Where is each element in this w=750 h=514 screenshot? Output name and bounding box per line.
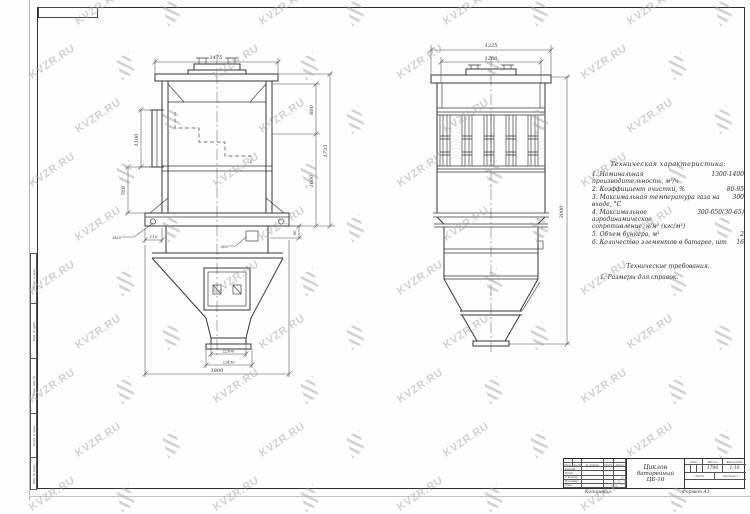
tech-specs-block: Техническая характеристика: 1. Номинальн… (592, 160, 744, 281)
spec-item: 5. Объем бункера, м³2 (592, 232, 744, 239)
tb-cell (604, 484, 614, 488)
dim-outlet-outer: □450 (223, 360, 235, 365)
tb-cell (614, 484, 626, 488)
spec-value: 2 (740, 232, 744, 239)
dim-inlet-height: 1100 (134, 133, 140, 147)
spec-text: 3. Максимальная температура газа на вход… (592, 195, 730, 208)
dim-outlet-inner: □300 (223, 349, 235, 354)
dim-base-offset: 110 (150, 234, 158, 239)
spec-item: 2. Коэффициент очистки, %80-95 (592, 187, 744, 194)
spec-item: 4. Максимальное аэродинамическое сопроти… (592, 210, 744, 230)
spec-item: 1. Номинальная производительность, м³/ч1… (592, 172, 744, 185)
tech-specs-title: Техническая характеристика: (592, 160, 744, 168)
left-view (145, 54, 289, 358)
dim-right-total: 1735 (323, 145, 329, 158)
right-view (431, 56, 551, 354)
dim-hole-diameter: Ø30 (112, 235, 122, 240)
spec-value: 16 (736, 240, 744, 247)
spec-text: 6. Количество элементов в батарее, шт (592, 240, 733, 247)
doc-name-line: ЦБ-16 (647, 477, 665, 483)
tb-cell (582, 484, 604, 488)
mass-value: 1790 (703, 465, 723, 473)
spec-value: 300 (733, 195, 744, 208)
document-name: Циклон батарейный ЦБ-16 (626, 459, 684, 488)
tech-requirements-title: Технические требования. (592, 263, 744, 270)
tech-requirement-item: 1. Размеры для справок. (592, 274, 744, 281)
dim-small-right: 90 (292, 230, 297, 236)
spec-text: 2. Коэффициент очистки, % (592, 187, 724, 194)
title-block: Изм. Лист № докум. Подп. Дата Разраб. Пр… (563, 458, 745, 489)
dim-base-width: 1800 (211, 368, 225, 374)
dim-rv-height: 3000 (559, 205, 565, 219)
spec-item: 6. Количество элементов в батарее, шт16 (592, 240, 744, 247)
scale-value: 1:10 (723, 465, 746, 473)
format-label: Формат А1 (682, 490, 710, 495)
tb-row-label: Утв. (564, 484, 582, 488)
spec-text: 4. Максимальное аэродинамическое сопроти… (592, 210, 694, 230)
dim-top-width: 1475 (210, 55, 223, 61)
spec-text: 5. Объем бункера, м³ (592, 232, 737, 239)
spec-value: 80-95 (727, 187, 744, 194)
dim-right-upper: 600 (309, 104, 315, 114)
dim-rv-inner-width: 1200 (485, 56, 499, 62)
doc-name-line: Циклон (643, 464, 667, 471)
titleblock-revision-grid: Изм. Лист № докум. Подп. Дата Разраб. Пр… (564, 459, 626, 488)
spec-value: 300-650(30-65) (697, 210, 744, 230)
sheet-label: Лист (685, 473, 715, 480)
drawing-sheet: { "watermark": { "text": "KVZR.RU" }, "c… (0, 0, 750, 500)
right-view-dimensions: 1325 1200 3000 (429, 43, 571, 347)
org-cell (685, 480, 746, 489)
dim-right-mid: 1600 (309, 174, 315, 188)
spec-text: 1. Номинальная производительность, м³/ч (592, 172, 708, 185)
spec-value: 1300-1400 (711, 172, 744, 185)
sheets-label: Листов 1 (715, 473, 746, 480)
spec-item: 3. Максимальная температура газа на вход… (592, 195, 744, 208)
dim-left-lower: 700 (121, 185, 127, 195)
dim-hatch-leader: 300 (220, 244, 228, 249)
titleblock-right-grid: Лит. Масса Масштаб 1790 1:10 Лист Листов… (684, 459, 746, 488)
dim-rv-outer-width: 1325 (485, 43, 498, 49)
copied-label: Копировал (585, 490, 611, 495)
